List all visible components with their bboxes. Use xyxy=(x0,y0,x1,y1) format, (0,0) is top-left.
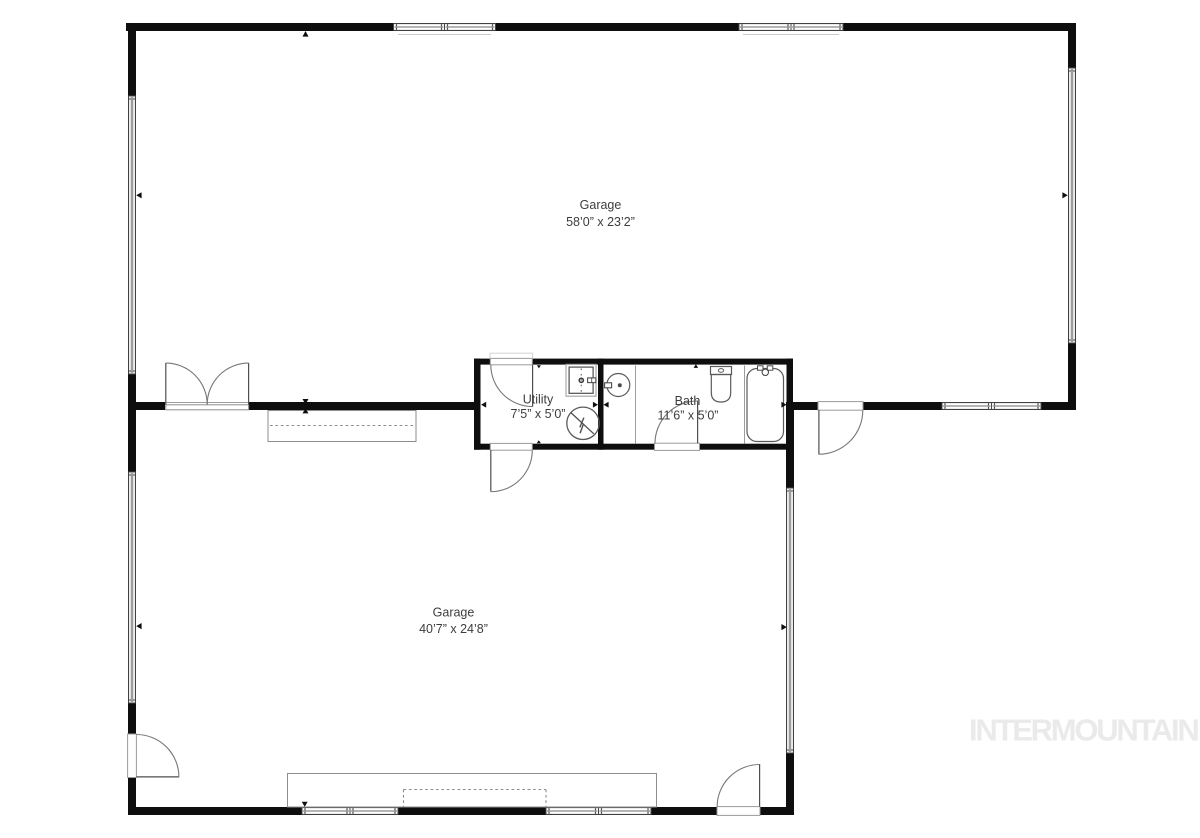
svg-text:40’7” x 24’8”: 40’7” x 24’8” xyxy=(419,622,488,636)
svg-text:Garage: Garage xyxy=(580,198,622,212)
svg-text:Garage: Garage xyxy=(433,606,475,620)
svg-text:58’0” x 23’2”: 58’0” x 23’2” xyxy=(566,215,635,229)
svg-text:Bath: Bath xyxy=(675,394,701,408)
svg-text:7’5” x 5’0”: 7’5” x 5’0” xyxy=(511,407,566,421)
svg-text:INTERMOUNTAIN: INTERMOUNTAIN xyxy=(969,713,1198,748)
svg-text:11’6” x 5’0”: 11’6” x 5’0” xyxy=(658,409,719,423)
svg-text:Utility: Utility xyxy=(523,393,554,407)
